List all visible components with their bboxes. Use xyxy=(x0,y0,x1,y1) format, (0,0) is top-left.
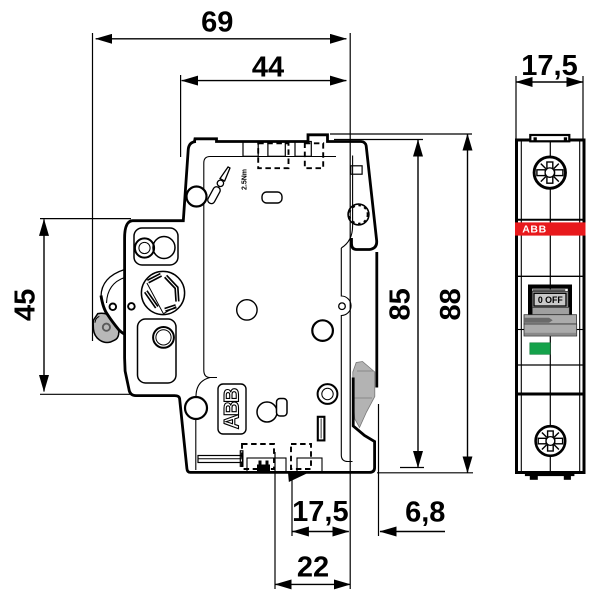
svg-text:69: 69 xyxy=(201,7,233,39)
svg-text:44: 44 xyxy=(252,52,284,84)
svg-text:88: 88 xyxy=(435,288,467,320)
svg-text:2.5Nm: 2.5Nm xyxy=(242,169,249,190)
svg-text:17,5: 17,5 xyxy=(521,50,577,82)
svg-text:0 OFF: 0 OFF xyxy=(538,295,564,305)
svg-text:17,5: 17,5 xyxy=(292,496,348,528)
svg-text:85: 85 xyxy=(385,288,417,320)
svg-text:22: 22 xyxy=(297,552,329,584)
svg-text:ABB: ABB xyxy=(522,224,547,236)
svg-text:45: 45 xyxy=(9,289,41,321)
svg-text:ABB: ABB xyxy=(221,388,244,429)
svg-text:6,8: 6,8 xyxy=(405,497,445,529)
